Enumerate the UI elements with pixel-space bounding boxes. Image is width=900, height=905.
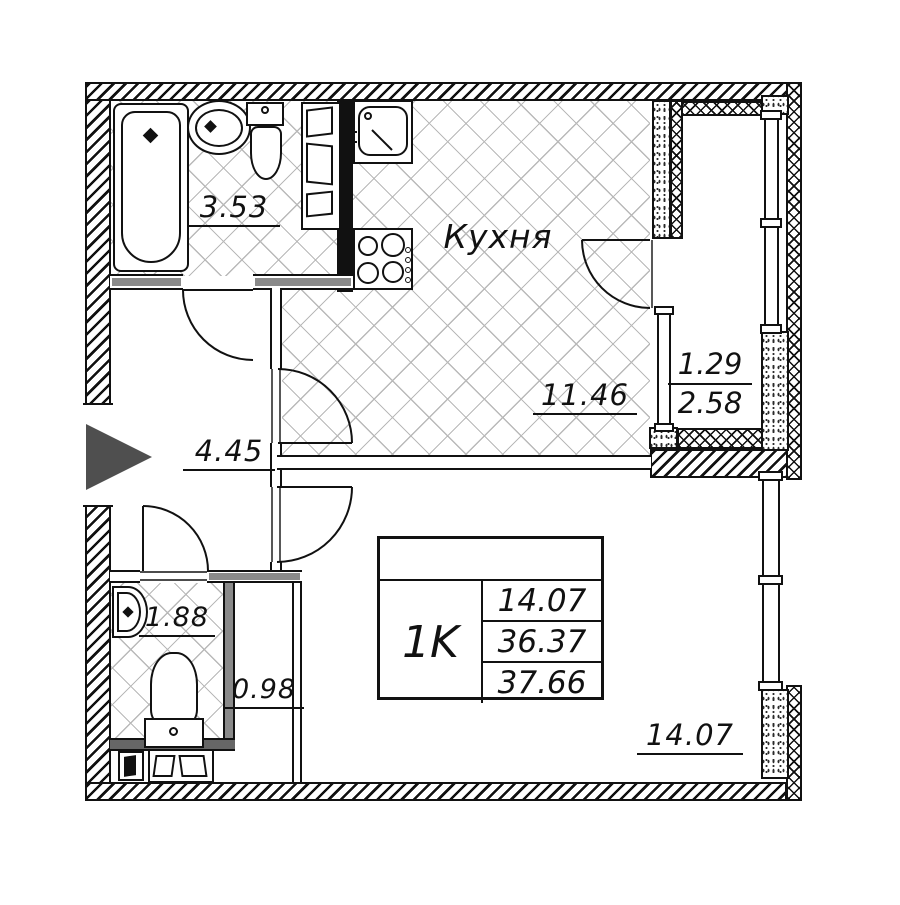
stove-knob [405, 277, 411, 283]
wall-fill [112, 278, 181, 286]
info-table: 1K 14.07 36.37 37.66 [377, 536, 604, 700]
wc-toilet-button [169, 727, 178, 736]
stove-knob [405, 247, 411, 253]
wc-top-wall [110, 570, 140, 583]
wall-fill [209, 573, 300, 580]
balcony-area-full: 2.58 [668, 387, 752, 420]
total-area-cell: 37.66 [483, 663, 601, 703]
wc-toilet-bowl [150, 652, 198, 724]
info-table-header [380, 539, 601, 581]
balcony-area-reduced: 1.29 [668, 348, 752, 381]
vent-flap [306, 143, 333, 186]
wall-fill [255, 278, 351, 286]
bathroom-area-label: 3.53 [188, 192, 280, 227]
vent-flap [124, 755, 136, 777]
glazing-mullion [760, 324, 782, 334]
toilet-button [261, 106, 269, 114]
kitchen-balcony-wall-insulation [652, 100, 671, 239]
insulation-block-right-mid [761, 331, 789, 451]
vent-flap [306, 191, 333, 218]
kitchen-room-wall [277, 455, 651, 470]
kitchen-name-label: Кухня [424, 220, 572, 255]
stove-burner [381, 233, 405, 257]
window-mullion [758, 575, 783, 585]
toilet-bowl [250, 126, 282, 180]
bathroom-sink-inner [195, 109, 243, 147]
window-mullion [758, 681, 783, 691]
closet-area-label: 0.98 [224, 676, 304, 709]
balcony-area-label: 1.29 2.58 [668, 348, 752, 421]
stove-knob [405, 257, 411, 263]
kitchen-area-label: 11.46 [533, 380, 637, 415]
hallway-area-label: 4.45 [183, 436, 275, 471]
glazing-mullion [760, 218, 782, 228]
bathroom-door-arc [183, 290, 253, 360]
living-area-cell: 14.07 [483, 581, 601, 622]
wall-top [85, 82, 788, 101]
entrance-arrow [86, 424, 152, 490]
balcony-parapet-top [680, 101, 764, 116]
kitchen-balcony-wall-masonry [670, 100, 683, 239]
window-mullion [654, 306, 674, 315]
fraction-bar [668, 383, 752, 385]
apartment-type-cell: 1K [380, 581, 483, 703]
apartment-area-cell: 36.37 [483, 622, 601, 663]
wc-door-arc [143, 506, 208, 571]
floor-plan: 3.53 Кухня 11.46 1.29 2.58 4.45 1.88 0.9… [0, 0, 900, 905]
insulation-block-below-window [761, 689, 789, 779]
hall-kitchen-wall [270, 288, 282, 369]
wc-area-label: 1.88 [139, 604, 215, 637]
vent-flap [178, 755, 207, 777]
window-mullion [758, 471, 783, 481]
balcony-parapet-bottom [677, 428, 765, 449]
glazing-mullion [760, 110, 782, 120]
stove-burner [358, 236, 378, 256]
stove-burner [382, 261, 404, 283]
window-mullion [654, 423, 674, 432]
vent-flap [306, 106, 333, 137]
wc-closet-wall [223, 583, 235, 740]
kitchen-sink-hole [364, 112, 372, 120]
room-door-arc [277, 487, 352, 562]
stove-knob [405, 267, 411, 273]
stove-burner [357, 262, 379, 284]
vent-flap [152, 755, 175, 777]
wall-bottom [85, 782, 787, 801]
living-room-area-label: 14.07 [637, 720, 743, 755]
